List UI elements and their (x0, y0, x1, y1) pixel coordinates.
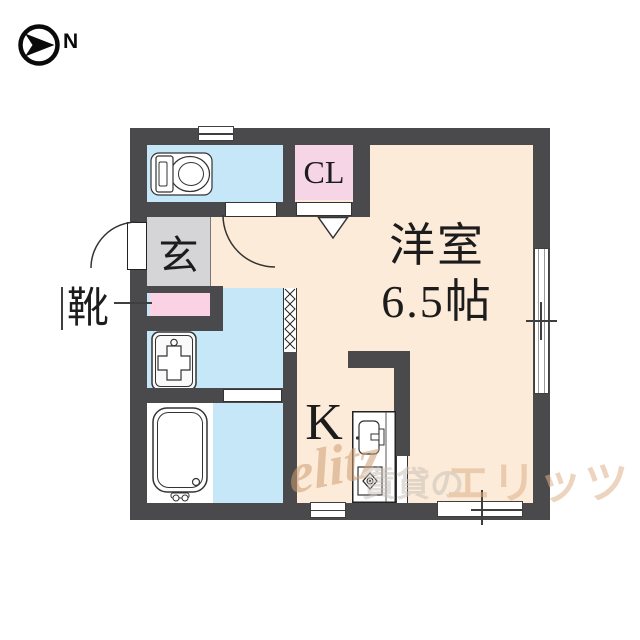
closet-door-swing-triangle-icon (317, 216, 349, 240)
bath-door-opening (223, 389, 282, 402)
shoes-bracket-line (61, 287, 63, 330)
bathtub-icon (150, 406, 211, 502)
window-right-center-line (540, 302, 542, 340)
compass-north-icon (16, 22, 62, 68)
shoes-leader-line (114, 302, 152, 304)
window-frame-line (311, 510, 345, 512)
closet-label: CL (295, 145, 353, 200)
window-bottom-right-tick (481, 490, 483, 525)
closet-door-opening (296, 202, 352, 216)
toilet-icon (150, 149, 214, 199)
compass-n-label: N (63, 30, 78, 54)
main-room-title: 洋室 6.5帖 (352, 218, 522, 330)
folding-door-zigzag-icon (283, 288, 297, 352)
shoebox (150, 293, 212, 316)
entrance-genkan-label: 玄 (147, 217, 211, 286)
entrance-door-swing-arc-icon (83, 218, 141, 276)
main-room-name: 洋室 (352, 218, 522, 274)
window-bottom-right (437, 501, 523, 517)
bathroom-floor-blue (213, 403, 283, 503)
wall-washroom-right (283, 352, 297, 503)
window-frame-line (199, 133, 233, 135)
wall-kitchen-right (394, 351, 410, 456)
washing-machine-pan-icon (151, 331, 197, 391)
window-frame-line (471, 509, 522, 511)
kitchen-label: K (296, 394, 352, 450)
window-bottom-left (310, 502, 346, 518)
floor-plan-page: N CL 玄 (0, 0, 640, 640)
toilet-door-swing-arc-icon (222, 214, 280, 272)
kitchen-counter-strip (396, 456, 408, 503)
wall-shoebox-bottom (147, 316, 213, 331)
window-top (198, 126, 234, 141)
shoes-label: 靴 (64, 281, 112, 327)
main-room-size: 6.5帖 (352, 274, 522, 330)
kitchen-sink-stove-icon (352, 411, 396, 503)
wall-toilet-closet (283, 145, 295, 202)
